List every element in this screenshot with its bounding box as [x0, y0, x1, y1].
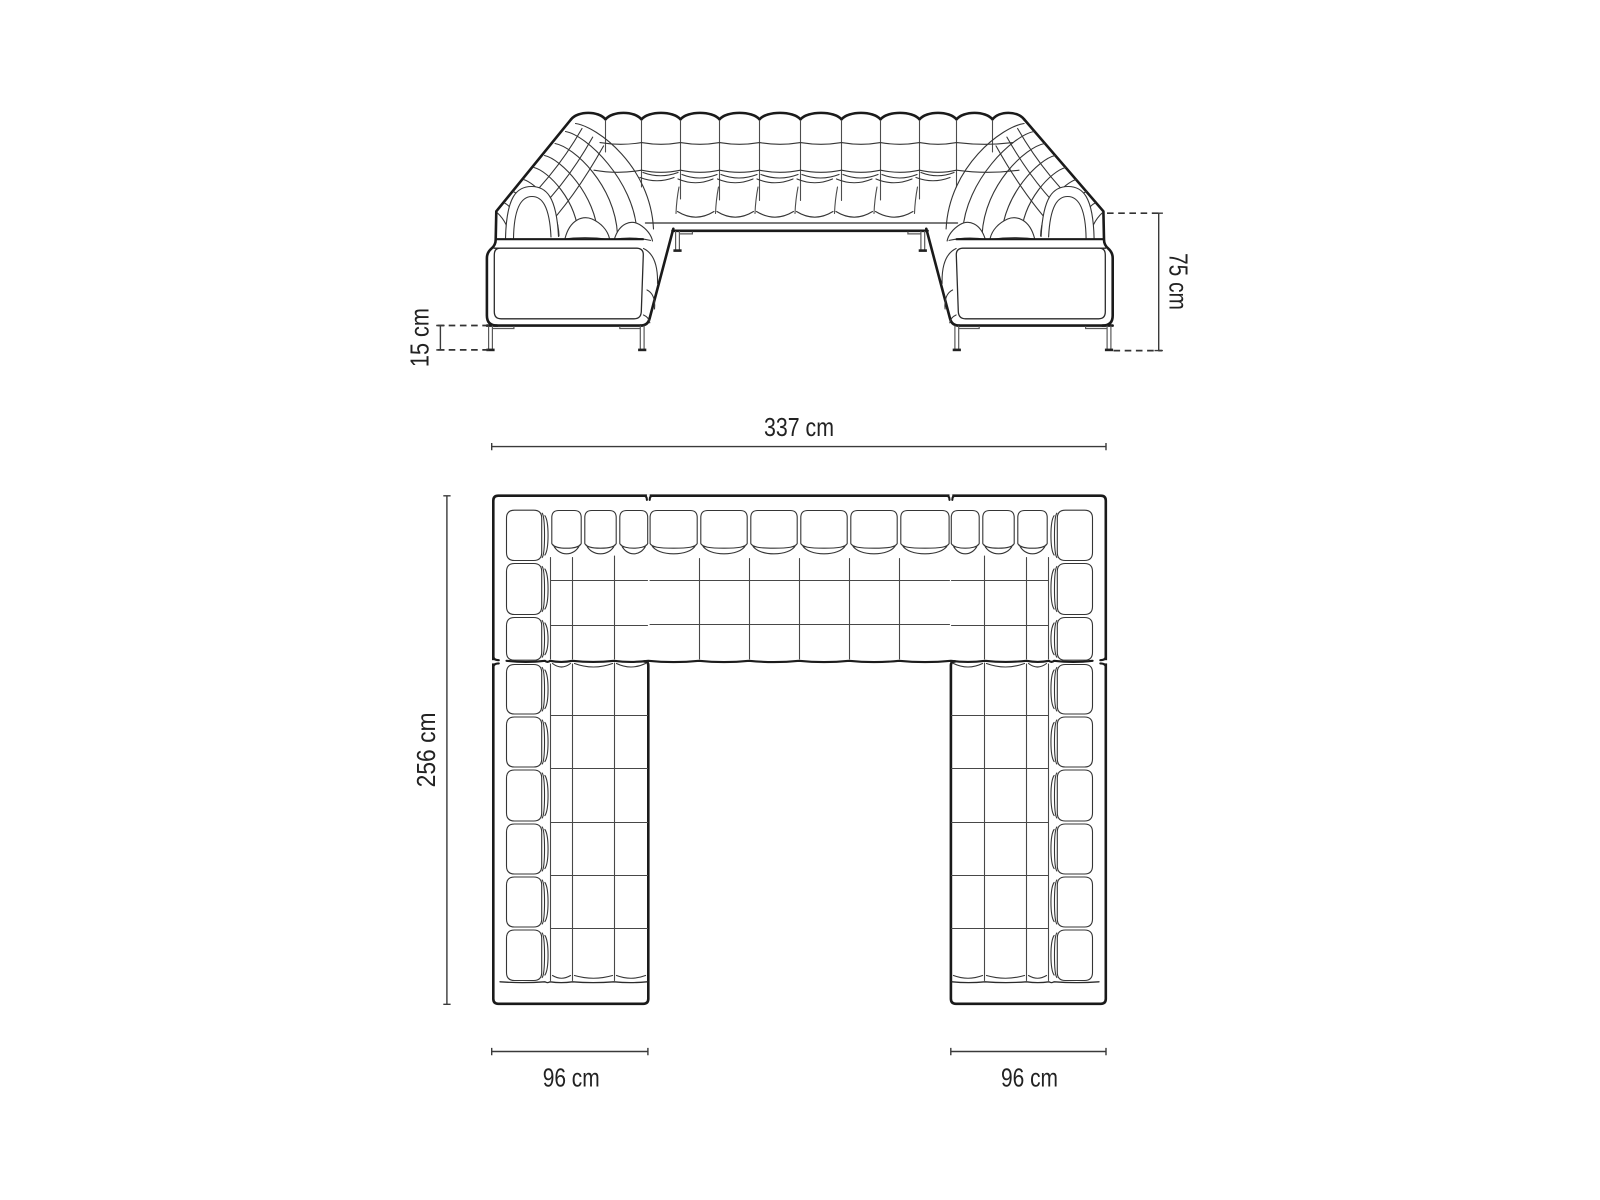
svg-text:15 cm: 15 cm — [405, 308, 435, 367]
svg-text:256 cm: 256 cm — [411, 712, 441, 787]
svg-text:96 cm: 96 cm — [1001, 1063, 1058, 1093]
svg-text:96 cm: 96 cm — [543, 1063, 600, 1093]
svg-text:337 cm: 337 cm — [764, 412, 834, 442]
svg-text:75 cm: 75 cm — [1164, 253, 1194, 310]
